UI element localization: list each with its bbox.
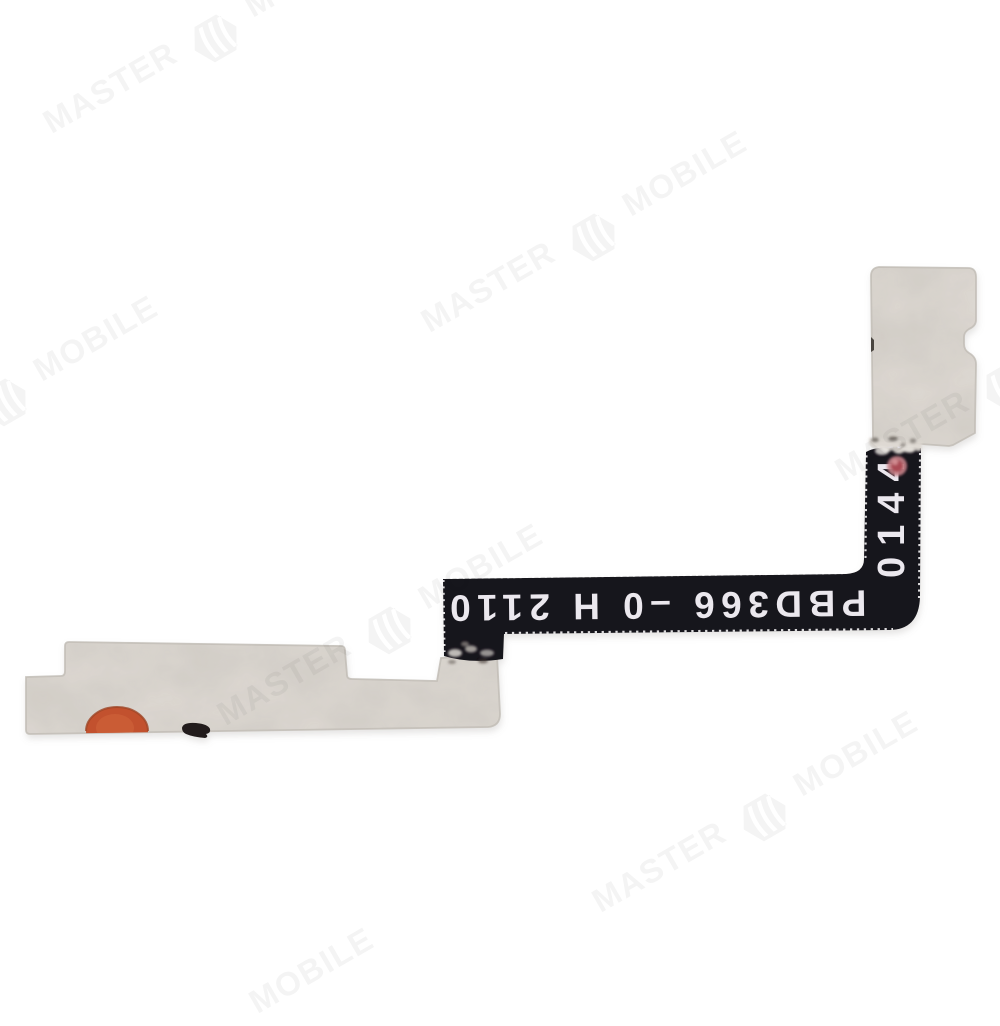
svg-text:PBD366 –0 H 2110: PBD366 –0 H 2110 (443, 582, 866, 628)
